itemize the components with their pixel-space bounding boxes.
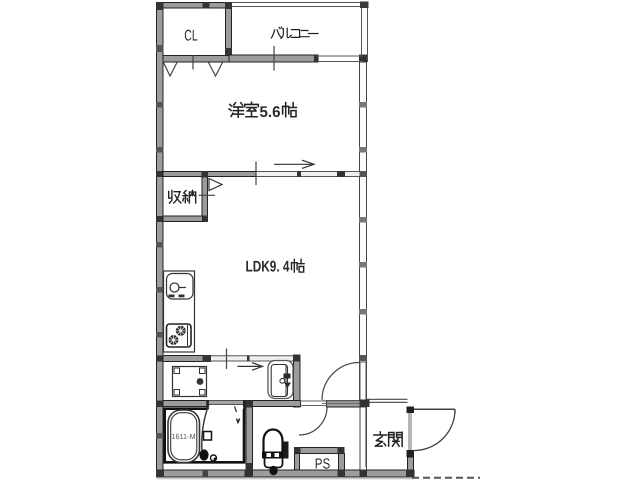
svg-text:5.6: 5.6 — [260, 104, 281, 121]
svg-text:LDK9. 4: LDK9. 4 — [246, 259, 290, 276]
svg-text:1611-M: 1611-M — [172, 432, 196, 441]
svg-text:CL: CL — [184, 27, 198, 44]
